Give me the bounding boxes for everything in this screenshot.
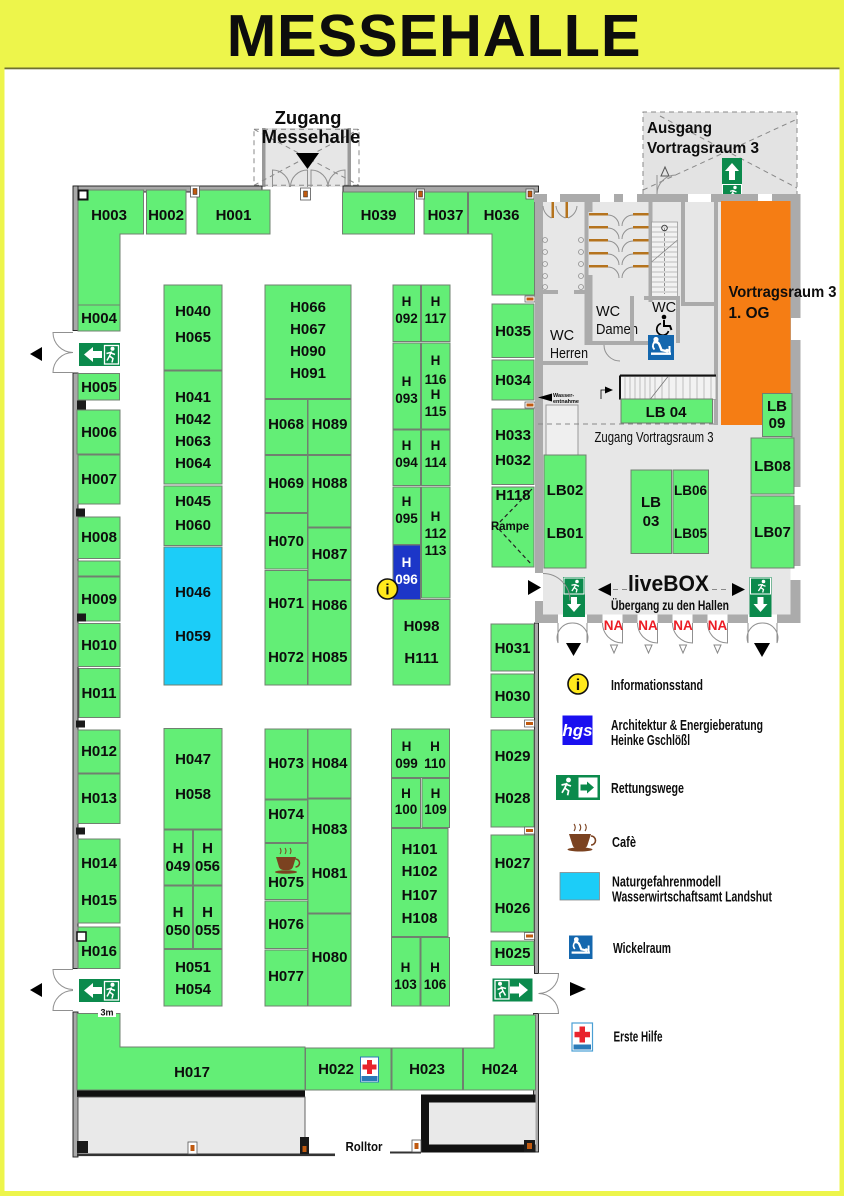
svg-text:113: 113: [425, 543, 447, 558]
svg-text:H091: H091: [290, 365, 326, 382]
svg-text:H060: H060: [175, 517, 211, 534]
svg-text:H: H: [431, 786, 441, 801]
svg-text:entnahme: entnahme: [553, 399, 579, 405]
svg-text:NA: NA: [604, 618, 624, 633]
svg-text:H046: H046: [175, 584, 211, 601]
svg-text:H: H: [430, 960, 440, 975]
svg-text:H: H: [402, 494, 412, 509]
svg-text:LB 04: LB 04: [646, 404, 688, 421]
svg-text:LB: LB: [767, 398, 787, 415]
svg-text:103: 103: [394, 977, 417, 992]
svg-text:H081: H081: [312, 865, 348, 882]
svg-text:WC: WC: [652, 300, 676, 316]
svg-text:H006: H006: [81, 424, 117, 441]
svg-text:Übergang zu den Hallen: Übergang zu den Hallen: [611, 598, 729, 613]
svg-text:H014: H014: [81, 855, 118, 872]
svg-text:i: i: [385, 582, 389, 599]
svg-text:H066: H066: [290, 299, 326, 316]
svg-text:H029: H029: [495, 748, 531, 765]
svg-text:H016: H016: [81, 943, 117, 960]
svg-text:093: 093: [395, 391, 418, 406]
svg-text:NA: NA: [638, 618, 658, 633]
svg-text:110: 110: [424, 756, 446, 771]
svg-text:H015: H015: [81, 892, 117, 909]
svg-text:1. OG: 1. OG: [729, 305, 770, 322]
svg-text:hgs: hgs: [562, 721, 592, 740]
svg-text:H072: H072: [268, 649, 304, 666]
svg-text:H086: H086: [312, 597, 348, 614]
svg-text:050: 050: [165, 922, 190, 939]
svg-text:H013: H013: [81, 790, 117, 807]
svg-text:H002: H002: [148, 207, 184, 224]
svg-text:H064: H064: [175, 455, 212, 472]
svg-text:Informationsstand: Informationsstand: [611, 678, 703, 694]
svg-text:H: H: [173, 904, 184, 921]
svg-text:H: H: [431, 353, 441, 368]
svg-text:H028: H028: [495, 790, 531, 807]
svg-text:LB02: LB02: [547, 482, 584, 499]
svg-text:H077: H077: [268, 968, 304, 985]
svg-text:092: 092: [395, 311, 418, 326]
svg-text:3m: 3m: [100, 1008, 113, 1018]
svg-text:H111: H111: [404, 650, 438, 667]
svg-text:H027: H027: [495, 855, 531, 872]
svg-text:Wickelraum: Wickelraum: [613, 941, 671, 957]
svg-text:095: 095: [395, 511, 418, 526]
svg-text:H: H: [431, 387, 441, 402]
svg-text:H040: H040: [175, 303, 211, 320]
svg-text:109: 109: [424, 802, 447, 817]
svg-text:115: 115: [425, 404, 447, 419]
svg-text:H102: H102: [402, 863, 438, 880]
svg-text:NA: NA: [673, 618, 693, 633]
svg-text:H059: H059: [175, 628, 211, 645]
svg-text:LB01: LB01: [547, 525, 584, 542]
svg-text:116: 116: [425, 372, 447, 387]
svg-text:liveBOX: liveBOX: [628, 571, 709, 596]
svg-text:H101: H101: [402, 841, 438, 858]
svg-text:H023: H023: [409, 1061, 445, 1078]
svg-text:H035: H035: [495, 323, 531, 340]
svg-text:H075: H075: [268, 874, 304, 891]
svg-text:H090: H090: [290, 343, 326, 360]
svg-text:H080: H080: [312, 949, 348, 966]
svg-text:H: H: [431, 294, 441, 309]
svg-text:H068: H068: [268, 416, 304, 433]
svg-text:H: H: [402, 555, 412, 570]
svg-text:Cafè: Cafè: [612, 835, 636, 851]
svg-text:H: H: [202, 840, 213, 857]
svg-text:H025: H025: [495, 945, 531, 962]
svg-text:H: H: [431, 438, 441, 453]
svg-text:H: H: [202, 904, 213, 921]
svg-text:H045: H045: [175, 493, 211, 510]
svg-text:H108: H108: [402, 910, 438, 927]
svg-text:H: H: [430, 739, 440, 754]
svg-text:H: H: [402, 374, 412, 389]
svg-text:H051: H051: [175, 959, 211, 976]
svg-text:LB06: LB06: [674, 483, 708, 498]
svg-text:H: H: [402, 739, 412, 754]
svg-text:H009: H009: [81, 591, 117, 608]
svg-text:Rolltor: Rolltor: [346, 1139, 383, 1154]
svg-text:09: 09: [769, 415, 786, 432]
svg-text:Rettungswege: Rettungswege: [611, 781, 684, 797]
svg-text:NA: NA: [708, 618, 728, 633]
svg-text:MESSEHALLE: MESSEHALLE: [227, 2, 642, 69]
svg-text:H039: H039: [361, 207, 397, 224]
svg-text:H063: H063: [175, 433, 211, 450]
svg-text:H001: H001: [216, 207, 252, 224]
svg-text:H026: H026: [495, 900, 531, 917]
svg-text:H: H: [402, 294, 412, 309]
svg-text:H033: H033: [495, 427, 531, 444]
svg-text:WC: WC: [550, 328, 574, 344]
svg-text:H107: H107: [402, 887, 438, 904]
svg-text:Architektur & Energieberatung: Architektur & Energieberatung: [611, 718, 763, 734]
svg-text:096: 096: [395, 572, 418, 587]
svg-text:055: 055: [195, 922, 220, 939]
svg-text:H098: H098: [404, 618, 440, 635]
svg-text:Heinke Gschlößl: Heinke Gschlößl: [611, 733, 690, 749]
svg-text:H083: H083: [312, 821, 348, 838]
svg-text:H037: H037: [428, 207, 464, 224]
svg-text:Zugang: Zugang: [275, 107, 342, 128]
svg-text:H031: H031: [495, 640, 531, 657]
svg-text:H065: H065: [175, 329, 211, 346]
svg-text:114: 114: [425, 455, 447, 470]
svg-text:LB05: LB05: [674, 526, 708, 541]
svg-text:117: 117: [425, 311, 447, 326]
svg-text:H036: H036: [484, 207, 520, 224]
svg-text:H034: H034: [495, 372, 532, 389]
svg-text:H010: H010: [81, 637, 117, 654]
svg-text:H076: H076: [268, 916, 304, 933]
svg-text:H070: H070: [268, 533, 304, 550]
svg-text:03: 03: [643, 513, 660, 530]
svg-text:Herren: Herren: [550, 346, 588, 362]
svg-text:112: 112: [425, 526, 447, 541]
svg-text:H071: H071: [268, 595, 304, 612]
svg-text:H069: H069: [268, 475, 304, 492]
svg-text:Wasserwirtschaftsamt Landshut: Wasserwirtschaftsamt Landshut: [612, 890, 772, 906]
svg-text:Ausgang: Ausgang: [647, 120, 712, 137]
svg-text:Naturgefahrenmodell: Naturgefahrenmodell: [612, 875, 721, 891]
svg-text:H085: H085: [312, 649, 348, 666]
svg-text:H: H: [431, 509, 441, 524]
svg-text:H012: H012: [81, 743, 117, 760]
svg-text:Vortragsraum 3: Vortragsraum 3: [729, 284, 837, 301]
svg-text:LB08: LB08: [754, 458, 791, 475]
svg-text:H007: H007: [81, 471, 117, 488]
svg-text:H008: H008: [81, 529, 117, 546]
svg-text:H054: H054: [175, 981, 212, 998]
svg-text:099: 099: [395, 756, 418, 771]
svg-text:100: 100: [395, 802, 418, 817]
svg-text:H: H: [402, 438, 412, 453]
svg-text:H041: H041: [175, 389, 211, 406]
svg-text:094: 094: [395, 455, 418, 470]
svg-text:H084: H084: [312, 755, 349, 772]
svg-text:H: H: [173, 840, 184, 857]
svg-text:H022: H022: [318, 1061, 354, 1078]
svg-text:H074: H074: [268, 806, 305, 823]
svg-text:106: 106: [424, 977, 447, 992]
svg-text:H017: H017: [174, 1064, 210, 1081]
svg-text:Erste Hilfe: Erste Hilfe: [614, 1030, 663, 1046]
svg-text:056: 056: [195, 858, 220, 875]
svg-text:H: H: [401, 960, 411, 975]
svg-text:Messehalle: Messehalle: [262, 126, 361, 147]
svg-text:H030: H030: [495, 688, 531, 705]
svg-text:H088: H088: [312, 475, 348, 492]
svg-text:WC: WC: [596, 304, 620, 320]
svg-text:H073: H073: [268, 755, 304, 772]
svg-text:H024: H024: [482, 1061, 519, 1078]
svg-text:H003: H003: [91, 207, 127, 224]
svg-text:H067: H067: [290, 321, 326, 338]
svg-text:LB: LB: [641, 494, 661, 511]
svg-text:049: 049: [165, 858, 190, 875]
svg-text:H058: H058: [175, 786, 211, 803]
svg-text:H004: H004: [81, 310, 118, 327]
svg-text:Zugang Vortragsraum 3: Zugang Vortragsraum 3: [595, 430, 714, 446]
svg-text:i: i: [576, 677, 580, 694]
svg-text:H032: H032: [495, 452, 531, 469]
svg-text:H005: H005: [81, 379, 117, 396]
svg-text:H087: H087: [312, 546, 348, 563]
svg-text:H042: H042: [175, 411, 211, 428]
svg-text:H011: H011: [81, 685, 116, 702]
svg-text:LB07: LB07: [754, 524, 791, 541]
svg-text:H: H: [401, 786, 411, 801]
svg-text:H047: H047: [175, 751, 211, 768]
svg-text:H089: H089: [312, 416, 348, 433]
svg-text:Vortragsraum 3: Vortragsraum 3: [647, 140, 759, 157]
